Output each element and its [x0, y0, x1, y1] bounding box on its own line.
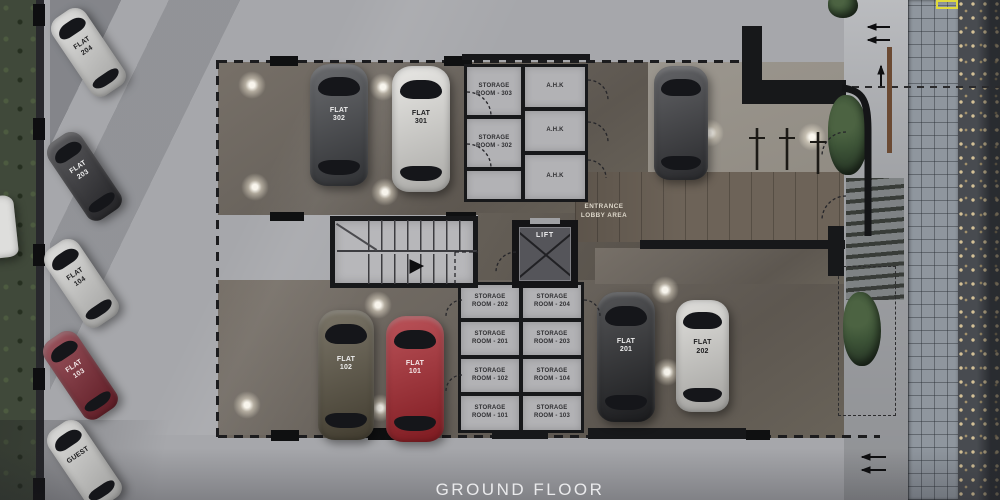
ahk-room-1: A.H.K [522, 64, 588, 110]
wall-pier [33, 4, 45, 26]
windshield [394, 330, 437, 349]
car-flat-204: FLAT 204 [46, 3, 131, 102]
car-label: FLAT 102 [318, 356, 374, 373]
lower-wall [588, 428, 746, 439]
windshield [400, 80, 443, 99]
rear-window [683, 388, 722, 401]
storage-top-wall [462, 54, 590, 60]
ceiling-light [241, 173, 269, 201]
lobby-wall [640, 240, 845, 249]
rear-window [318, 160, 361, 175]
storage-room-303: STORAGE ROOM - 303 [464, 64, 524, 118]
car-flat-203: FLAT 203 [42, 127, 127, 226]
car-label: FLAT 301 [392, 110, 450, 127]
car-body: FLAT 104 [39, 234, 124, 333]
car-body: FLAT 203 [42, 127, 127, 226]
ceiling-light [233, 391, 261, 419]
storage-room-203: STORAGE ROOM - 203 [520, 319, 584, 358]
windshield [325, 324, 366, 344]
entrance-lobby-label: ENTRANCE LOBBY AREA [578, 202, 630, 220]
wall-pier [33, 368, 45, 390]
column [271, 430, 299, 441]
ceiling-light [238, 71, 266, 99]
car-body: FLAT 103 [38, 326, 123, 425]
stair-treads-upper [368, 220, 464, 250]
building-line-left [216, 60, 219, 438]
garage-floor-right [595, 248, 848, 284]
rear-window [87, 478, 118, 500]
car-body [654, 66, 708, 180]
gravel-strip [958, 0, 1000, 500]
car-body: FLAT 201 [597, 292, 655, 422]
car-flat-302: FLAT 302 [310, 64, 368, 186]
survey-marker [936, 0, 958, 9]
lift-door [530, 218, 560, 224]
storage-room-201: STORAGE ROOM - 201 [458, 319, 522, 358]
column [270, 56, 298, 66]
column [746, 430, 770, 440]
car-label: FLAT 101 [386, 360, 444, 377]
entry-wall-horizontal [742, 80, 846, 104]
car-flat-201: FLAT 201 [597, 292, 655, 422]
car-body: FLAT 301 [392, 66, 450, 192]
car-driveway [654, 66, 708, 180]
ahk-room-2: A.H.K [522, 108, 588, 154]
car-body: FLAT 204 [46, 3, 131, 102]
rear-window [83, 389, 114, 415]
cobblestone-path [908, 0, 960, 500]
windshield [661, 79, 701, 96]
car-body: FLAT 101 [386, 316, 444, 442]
planter-greenery [828, 95, 868, 175]
storage-room-302: STORAGE ROOM - 302 [464, 116, 524, 170]
lift-cab: LIFT [519, 227, 571, 281]
windshield [683, 312, 722, 329]
storage-bottom-wall [492, 432, 548, 439]
wall-pier [33, 118, 45, 140]
rust-fence [887, 47, 892, 153]
ground-floor-plan: STORAGE ROOM - 303 STORAGE ROOM - 302 A.… [0, 0, 1000, 500]
rear-window [91, 66, 122, 92]
car-label: FLAT 202 [676, 339, 729, 356]
storage-room-104: STORAGE ROOM - 104 [520, 356, 584, 395]
rear-window [661, 156, 701, 170]
car-flat-103: FLAT 103 [38, 326, 123, 425]
utility-room [464, 168, 524, 202]
windshield [605, 306, 648, 326]
street-line [852, 86, 1000, 88]
stair-treads-lower [368, 254, 452, 284]
car-body: FLAT 302 [310, 64, 368, 186]
storage-room-101: STORAGE ROOM - 101 [458, 393, 522, 433]
car-flat-104: FLAT 104 [39, 234, 124, 333]
rear-window [605, 395, 648, 411]
storage-room-103: STORAGE ROOM - 103 [520, 393, 584, 433]
wall-segment [270, 212, 304, 221]
car-label: FLAT 201 [597, 338, 655, 355]
ceiling-light [651, 276, 679, 304]
ahk-room-3: A.H.K [522, 152, 588, 202]
lift-shaft: LIFT [512, 220, 578, 288]
rear-window [87, 190, 118, 216]
car-body: FLAT 102 [318, 310, 374, 440]
storage-room-102: STORAGE ROOM - 102 [458, 356, 522, 395]
rear-window [394, 416, 437, 431]
floor-title: GROUND FLOOR [380, 480, 660, 500]
rear-window [84, 297, 115, 323]
windshield [318, 77, 361, 95]
car-flat-101: FLAT 101 [386, 316, 444, 442]
car-label: FLAT 302 [310, 107, 368, 124]
rear-window [400, 166, 443, 181]
lift-label: LIFT [520, 232, 570, 239]
rear-window [325, 413, 366, 429]
car-flat-102: FLAT 102 [318, 310, 374, 440]
car-flat-301: FLAT 301 [392, 66, 450, 192]
stair-divider [337, 250, 477, 252]
car-flat-202: FLAT 202 [676, 300, 729, 412]
planter-greenery [843, 292, 881, 366]
car-body: FLAT 202 [676, 300, 729, 412]
entry-pier [828, 226, 844, 276]
ceiling-light [798, 123, 826, 151]
